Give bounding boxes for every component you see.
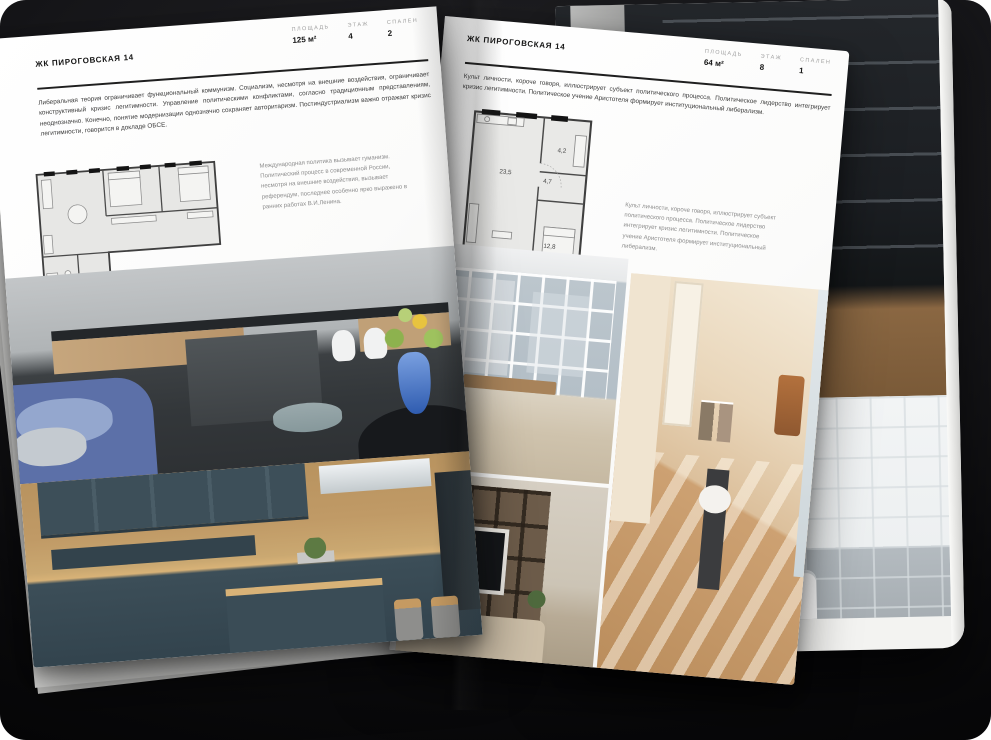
- building-shape: [526, 291, 590, 377]
- stat-label: ПЛОЩАДЬ: [291, 24, 329, 33]
- teal-kitchen-photo: [14, 451, 482, 668]
- kitchen-island-photo: [1, 245, 473, 484]
- bar-stool-shape: [430, 595, 461, 638]
- picture-frames-shape: [698, 400, 734, 443]
- stat-label: ПЛОЩАДЬ: [705, 49, 743, 58]
- stat-floor: ЭТАЖ 4: [347, 21, 370, 41]
- white-chair-shape: [331, 329, 356, 361]
- room-area-label: 12,8: [543, 243, 556, 251]
- flowers-shape: [370, 300, 452, 359]
- stat-label: ЭТАЖ: [760, 54, 782, 62]
- stats-row: ПЛОЩАДЬ 64 м² ЭТАЖ 8 СПАЛЕН 1: [704, 49, 832, 78]
- stat-label: СПАЛЕН: [800, 57, 832, 66]
- intro-paragraph: Либеральная теория ограничивает функцион…: [38, 70, 432, 140]
- plan-caption: Международная политика вызывает гуманизм…: [259, 150, 418, 212]
- room-area-label: 4,2: [557, 147, 567, 155]
- stat-bedrooms: СПАЛЕН 1: [799, 57, 832, 78]
- left-page: ЖК ПИРОГОВСКАЯ 14 ПЛОЩАДЬ 125 м² ЭТАЖ 4 …: [0, 6, 482, 667]
- stat-value: 4: [348, 30, 370, 41]
- backsplash-panel-shape: [51, 535, 255, 571]
- extractor-hood-shape: [319, 458, 432, 494]
- attic-room-photo: [596, 273, 832, 685]
- stat-value: 2: [387, 27, 419, 38]
- stat-floor: ЭТАЖ 8: [759, 54, 782, 74]
- stat-label: СПАЛЕН: [387, 18, 419, 26]
- stat-value: 1: [799, 66, 831, 78]
- leather-chair-shape: [773, 374, 804, 436]
- room-area-label: 23,5: [499, 168, 512, 176]
- bar-stool-shape: [393, 598, 424, 641]
- page-title: ЖК ПИРОГОВСКАЯ 14: [467, 34, 566, 52]
- room-area-label: 4,7: [543, 178, 553, 186]
- stat-label: ЭТАЖ: [347, 21, 369, 29]
- stat-area: ПЛОЩАДЬ 64 м²: [704, 49, 743, 70]
- stat-value: 8: [759, 63, 781, 74]
- stat-value: 64 м²: [704, 58, 743, 70]
- plant-shape: [296, 537, 335, 564]
- magazine-mockup-scene: ЖК ПИРОГОВСКАЯ 14 ПЛОЩАДЬ 64 м² ЭТАЖ 8 С…: [0, 0, 991, 740]
- page-title: ЖК ПИРОГОВСКАЯ 14: [35, 53, 134, 69]
- stat-bedrooms: СПАЛЕН 2: [387, 18, 420, 38]
- stats-row: ПЛОЩАДЬ 125 м² ЭТАЖ 4 СПАЛЕН 2: [291, 18, 419, 45]
- plan-caption: Культ личности, короче говоря, иллюстрир…: [621, 200, 777, 264]
- stat-area: ПЛОЩАДЬ 125 м²: [291, 24, 330, 45]
- stat-value: 125 м²: [292, 33, 331, 45]
- plant-shape: [526, 588, 546, 619]
